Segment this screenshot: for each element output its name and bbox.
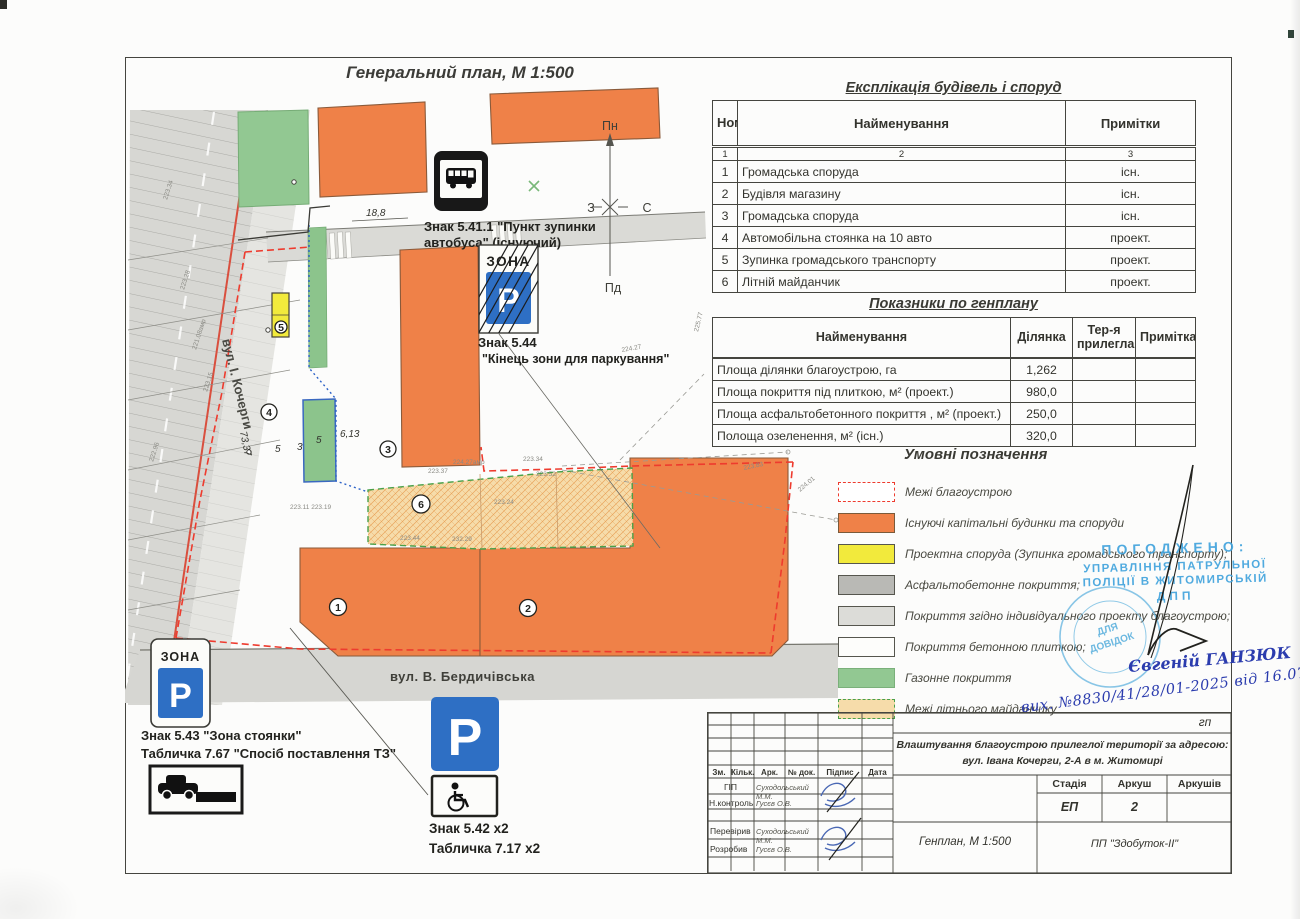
table-row: 2 Будівля магазину існ.	[713, 183, 1196, 205]
parking-sign-label-2: Табличка 7.17 х2	[429, 841, 540, 856]
map-annotation: 224.27амр	[453, 459, 485, 466]
explication-col-name: Найменування	[738, 101, 1066, 147]
table-row: 3 Громадська споруда існ.	[713, 205, 1196, 227]
indicators-col-name: Найменування	[713, 318, 1011, 359]
explication-title: Експлікація будівель і споруд	[712, 80, 1195, 96]
existing-buildings-swatch	[838, 513, 895, 533]
map-annotation: 223.24	[494, 499, 514, 506]
svg-text:4: 4	[266, 407, 272, 419]
concrete-tile-swatch	[838, 637, 895, 657]
map-annotation: 223.44	[400, 535, 420, 542]
titleblock-signatures	[821, 772, 861, 860]
indicators-col-dilyanka: Ділянка	[1011, 318, 1073, 359]
parking-zone-label-2: Табличка 7.67 "Спосіб поставлення ТЗ"	[141, 746, 396, 761]
stage-value: ЕП	[1037, 800, 1102, 814]
boundary-swatch	[838, 482, 895, 502]
zone-end-label-1: Знак 5.44	[478, 335, 537, 350]
indicators-col-note: Примітка	[1136, 318, 1196, 359]
building-3	[400, 246, 480, 467]
scan-blotch	[0, 866, 80, 919]
legend-title: Умовні позначення	[904, 446, 1047, 463]
company-name: ПП "Здобуток-ІІ"	[1037, 838, 1232, 850]
parking-zone-label-1: Знак 5.43 "Зона стоянки"	[141, 728, 302, 743]
compass-rose: Пн З С Пд	[587, 119, 651, 295]
indicators-col-terya: Тер-я прилегла	[1073, 318, 1136, 359]
street-label-berdychivska: вул. В. Бердичівська	[390, 669, 535, 684]
bus-stop-sign-label-1: Знак 5.41.1 "Пункт зупинки	[424, 219, 596, 234]
table-row: Полоща озеленення, м² (існ.) 320,0	[713, 425, 1196, 447]
parking-p-letter: P	[448, 709, 483, 767]
green-x-mark	[529, 181, 539, 191]
map-annotation: 224.01	[797, 475, 817, 493]
asphalt-swatch	[838, 575, 895, 595]
building-number-badge: 2	[520, 600, 537, 617]
scan-edge-shadow	[1290, 0, 1300, 919]
project-description: Влаштування благоустрою прилеглої терито…	[893, 738, 1232, 770]
scanned-genplan-page: Генеральний план, М 1:500	[0, 0, 1300, 919]
explication-col-note: Примітки	[1066, 101, 1196, 147]
building-1	[300, 548, 480, 656]
building-a	[318, 102, 427, 197]
explication-table: Номер по плану Найменування Примітки 1 2…	[712, 100, 1196, 293]
table-row: Площа ділянки благоустрою, га 1,262	[713, 358, 1196, 381]
table-row: 5 Зупинка громадського транспорту проект…	[713, 249, 1196, 271]
map-annotation: 3	[297, 442, 303, 453]
explication-col-num: Номер по плану	[713, 101, 738, 147]
parking-method-plate	[150, 766, 242, 813]
building-number-badge: 1	[330, 599, 347, 616]
proposed-structure-swatch	[838, 544, 895, 564]
map-annotation: 223.11 223.19	[290, 504, 331, 511]
map-annotation: 223.37	[428, 468, 448, 475]
svg-text:5: 5	[278, 322, 284, 334]
parking-zone-zona-text: ЗОНА	[161, 650, 200, 664]
zone-end-label-2: "Кінець зони для паркування"	[482, 352, 669, 366]
titleblock-corner-code: гп	[1185, 715, 1225, 729]
table-row: 6 Літній майданчик проект.	[713, 271, 1196, 293]
map-annotation: 232.29	[452, 536, 472, 543]
parking-sign-label-1: Знак 5.42 х2	[429, 821, 509, 836]
title-block: гп Влаштування благоустрою прилеглої тер…	[707, 712, 1232, 874]
table-row: Площа асфальтобетонного покриття , м² (п…	[713, 403, 1196, 425]
building-number-badge: 5	[275, 321, 287, 334]
wheelchair-plate	[432, 776, 497, 816]
building-b	[490, 88, 660, 144]
parking-zone-p-letter: P	[169, 677, 192, 715]
building-number-badge: 6	[412, 495, 430, 513]
column-number-row: 1 2 3	[713, 147, 1196, 161]
titleblock-doc-title: Генплан, М 1:500	[893, 836, 1037, 848]
map-annotation: 225.77	[693, 311, 705, 332]
individual-paving-swatch	[838, 606, 895, 626]
building-number-badge: 3	[380, 441, 396, 457]
svg-text:2: 2	[525, 603, 531, 615]
map-annotation: 6,13	[340, 429, 360, 440]
table-row: 1 Громадська споруда існ.	[713, 161, 1196, 183]
indicators-title: Показники по генплану	[712, 296, 1195, 312]
sheet-value: 2	[1102, 800, 1167, 814]
building-number-badge: 4	[261, 404, 277, 420]
svg-text:3: 3	[385, 444, 391, 456]
compass-west-label: З	[587, 201, 595, 215]
svg-text:6: 6	[418, 499, 424, 511]
lawn-swatch	[838, 668, 895, 688]
map-annotation: 223.52	[536, 471, 556, 478]
map-annotation: 223.34	[523, 456, 543, 463]
svg-text:1: 1	[335, 602, 341, 614]
map-annotation: 5	[275, 444, 281, 455]
compass-east-label: С	[642, 201, 651, 215]
indicators-table: Найменування Ділянка Тер-я прилегла Прим…	[712, 317, 1196, 447]
map-annotation: 18,8	[366, 208, 386, 219]
map-annotation: 5	[316, 435, 322, 446]
scan-speck	[0, 0, 7, 9]
table-row: 4 Автомобільна стоянка на 10 авто проект…	[713, 227, 1196, 249]
compass-north-label: Пн	[602, 119, 618, 133]
compass-south-label: Пд	[605, 281, 622, 295]
table-row: Площа покриття під плиткою, м² (проект.)…	[713, 381, 1196, 403]
parking-sign: P Знак 5.42 х2 Табличка 7.17 х2	[429, 697, 540, 856]
